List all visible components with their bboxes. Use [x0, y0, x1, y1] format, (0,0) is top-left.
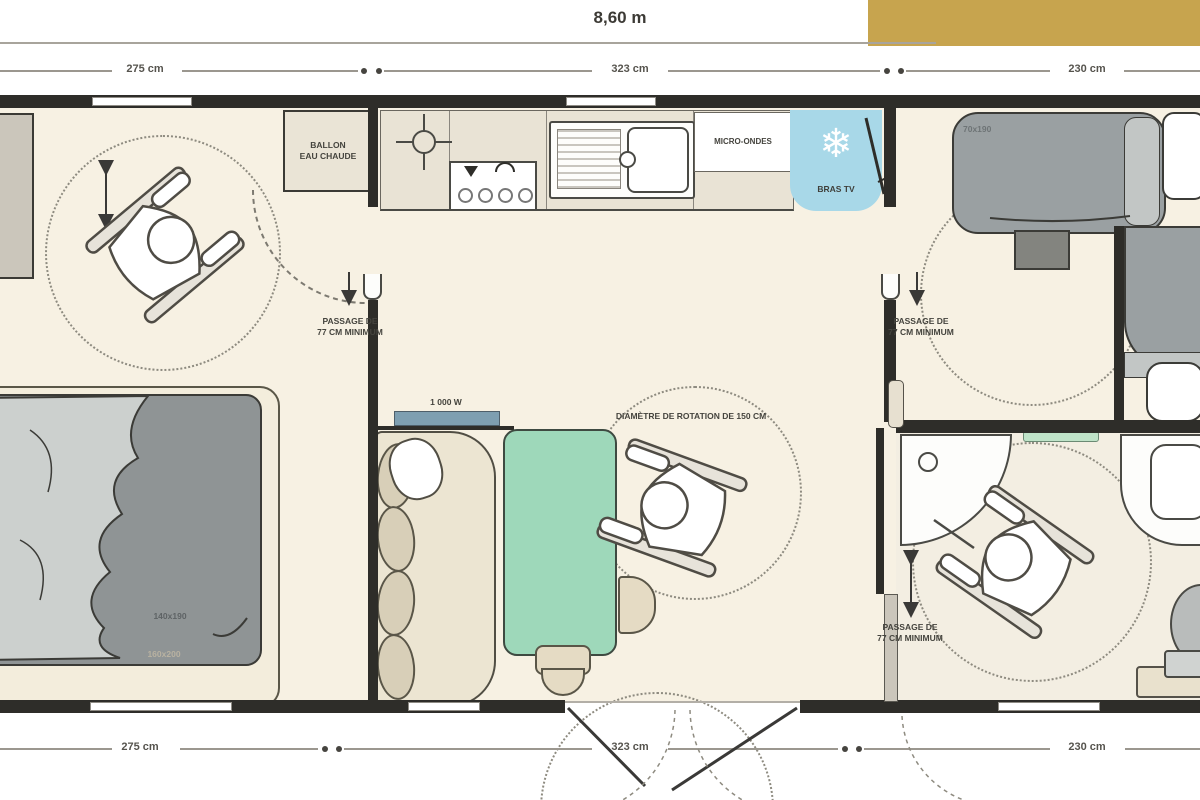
- dim-line: [1124, 70, 1200, 72]
- dim-label-bottom-left: 275 cm: [105, 741, 175, 753]
- dim-line: [864, 748, 1050, 750]
- second-bed-pillow-top: [1162, 112, 1200, 200]
- bedroom2-door-leaf[interactable]: [888, 380, 904, 428]
- passage-line1: PASSAGE DE: [305, 316, 395, 327]
- passage-line2: 77 CM MINIMUM: [864, 633, 956, 644]
- dim-line: [0, 70, 112, 72]
- second-bed-pillow: [1146, 362, 1200, 422]
- entry-door-threshold: [565, 701, 800, 703]
- single-bed-size-label: 70x190: [963, 124, 1023, 135]
- rotation-circle-bedroom1: [45, 135, 281, 371]
- dim-line: [180, 748, 318, 750]
- window: [566, 97, 656, 106]
- floorplan-canvas: 8,60 m 275 cm 323 cm 230 cm BALLON EAU C…: [0, 0, 1200, 800]
- second-single-bed: [1124, 226, 1200, 370]
- dim-line: [668, 748, 838, 750]
- passage-line1: PASSAGE DE: [876, 316, 966, 327]
- dim-label-top-right: 230 cm: [1052, 63, 1122, 75]
- gold-corner-band: [868, 0, 1200, 46]
- wall-bedroom1-kitchen: [368, 108, 378, 207]
- rotation-diameter-label: DIAMÈTRE DE ROTATION DE 150 CM: [588, 411, 794, 422]
- door-stop: [363, 274, 382, 300]
- window: [92, 97, 192, 106]
- passage-label-2: PASSAGE DE 77 CM MINIMUM: [876, 316, 966, 338]
- passage-label-3: PASSAGE DE 77 CM MINIMUM: [864, 622, 956, 644]
- dim-label-top-mid: 323 cm: [595, 63, 665, 75]
- sink-faucet: [619, 151, 636, 168]
- radiator: [394, 411, 500, 426]
- overall-width-label: 8,60 m: [570, 8, 670, 28]
- double-bed-mattress: [0, 394, 262, 666]
- fridge: ❄ BRAS TV: [790, 110, 882, 211]
- passage-line1: PASSAGE DE: [864, 622, 956, 633]
- stove-burner: [478, 188, 493, 203]
- water-heater-label-2: EAU CHAUDE: [300, 151, 357, 162]
- dim-line: [668, 70, 880, 72]
- dim-dot: [376, 68, 382, 74]
- dim-dot: [842, 746, 848, 752]
- washbasin: [1150, 444, 1200, 520]
- stove: [449, 161, 537, 211]
- dim-label-top-left: 275 cm: [110, 63, 180, 75]
- snowflake-icon: ❄: [790, 124, 882, 164]
- microwave: MICRO-ONDES: [694, 112, 792, 172]
- dim-line: [1125, 748, 1200, 750]
- dim-label-bottom-right: 230 cm: [1052, 741, 1122, 753]
- wall-bedroom1-kitchen: [368, 300, 378, 700]
- dim-line: [384, 70, 592, 72]
- sink-drainboard: [557, 129, 621, 189]
- stove-burner: [518, 188, 533, 203]
- dim-dot: [322, 746, 328, 752]
- passage-line2: 77 CM MINIMUM: [305, 327, 395, 338]
- toilet-tank: [1164, 650, 1200, 678]
- dim-dot: [361, 68, 367, 74]
- dim-label-bottom-mid: 323 cm: [595, 741, 665, 753]
- dim-line: [344, 748, 592, 750]
- radiator-label: 1 000 W: [394, 397, 498, 408]
- passage-label-1: PASSAGE DE 77 CM MINIMUM: [305, 316, 395, 338]
- dim-dot: [336, 746, 342, 752]
- dim-line: [0, 748, 112, 750]
- single-bed-pillow: [1124, 117, 1160, 226]
- wall-glazed: [884, 594, 898, 702]
- dining-table: [503, 429, 617, 656]
- wall-bottom: [0, 700, 565, 713]
- sink-bowl: [627, 127, 689, 193]
- stove-burner: [498, 188, 513, 203]
- wall-kitchen-bedroom2: [884, 108, 896, 207]
- tv-bracket-label: BRAS TV: [790, 184, 882, 195]
- microwave-label: MICRO-ONDES: [714, 137, 772, 147]
- dim-dot: [856, 746, 862, 752]
- water-heater-label-1: BALLON: [310, 140, 345, 151]
- dim-dot: [884, 68, 890, 74]
- overall-dim-line: [0, 42, 936, 44]
- wall-bed-divider: [1114, 226, 1124, 426]
- stove-burner: [458, 188, 473, 203]
- half-wall: [368, 426, 514, 430]
- counter-divider: [546, 111, 547, 209]
- window: [998, 702, 1100, 711]
- dim-dot: [898, 68, 904, 74]
- wardrobe: [0, 113, 34, 279]
- dim-line: [906, 70, 1050, 72]
- window: [90, 702, 232, 711]
- double-bed-size-label: 140x190: [128, 611, 212, 622]
- double-bed-alt-size-label: 160x200: [122, 649, 206, 660]
- water-heater-closet: BALLON EAU CHAUDE: [283, 110, 373, 192]
- window: [408, 702, 480, 711]
- dim-line: [182, 70, 358, 72]
- shower-drain: [918, 452, 938, 472]
- bathroom-sliding-door[interactable]: [876, 428, 884, 594]
- passage-line2: 77 CM MINIMUM: [876, 327, 966, 338]
- bedside-cabinet: [1014, 230, 1070, 270]
- wall-bathroom-top: [896, 420, 1200, 433]
- door-stop: [881, 274, 900, 300]
